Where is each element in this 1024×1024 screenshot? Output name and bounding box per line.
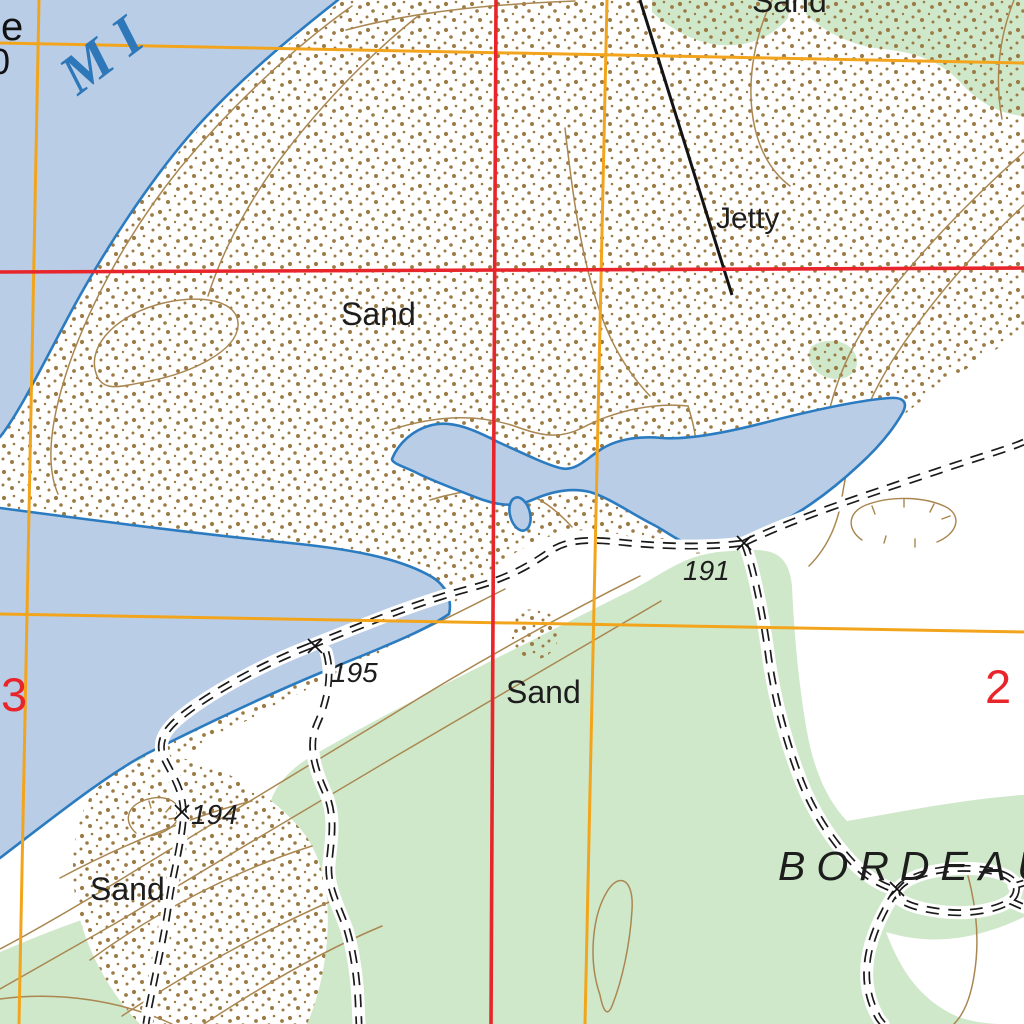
sand-label-mid: Sand (506, 674, 581, 710)
spot-height-191: 191 (683, 555, 730, 586)
place-name-label: BORDEAUX (778, 843, 1024, 889)
sand-label-top: Sand (752, 0, 827, 19)
grid-number-right: 2 (985, 660, 1011, 713)
topo-map: MI e 0 Sand Sand Jetty Sand Sand 191 195… (0, 0, 1024, 1024)
sand-label-low: Sand (90, 871, 165, 907)
jetty-label: Jetty (716, 202, 779, 235)
grid-number-left: 3 (1, 668, 27, 721)
map-canvas: MI e 0 Sand Sand Jetty Sand Sand 191 195… (0, 0, 1024, 1024)
edge-text-bottom: 0 (0, 41, 10, 82)
spot-height-194: 194 (191, 799, 238, 830)
spot-height-195: 195 (331, 657, 378, 688)
sand-label-main: Sand (341, 296, 416, 332)
